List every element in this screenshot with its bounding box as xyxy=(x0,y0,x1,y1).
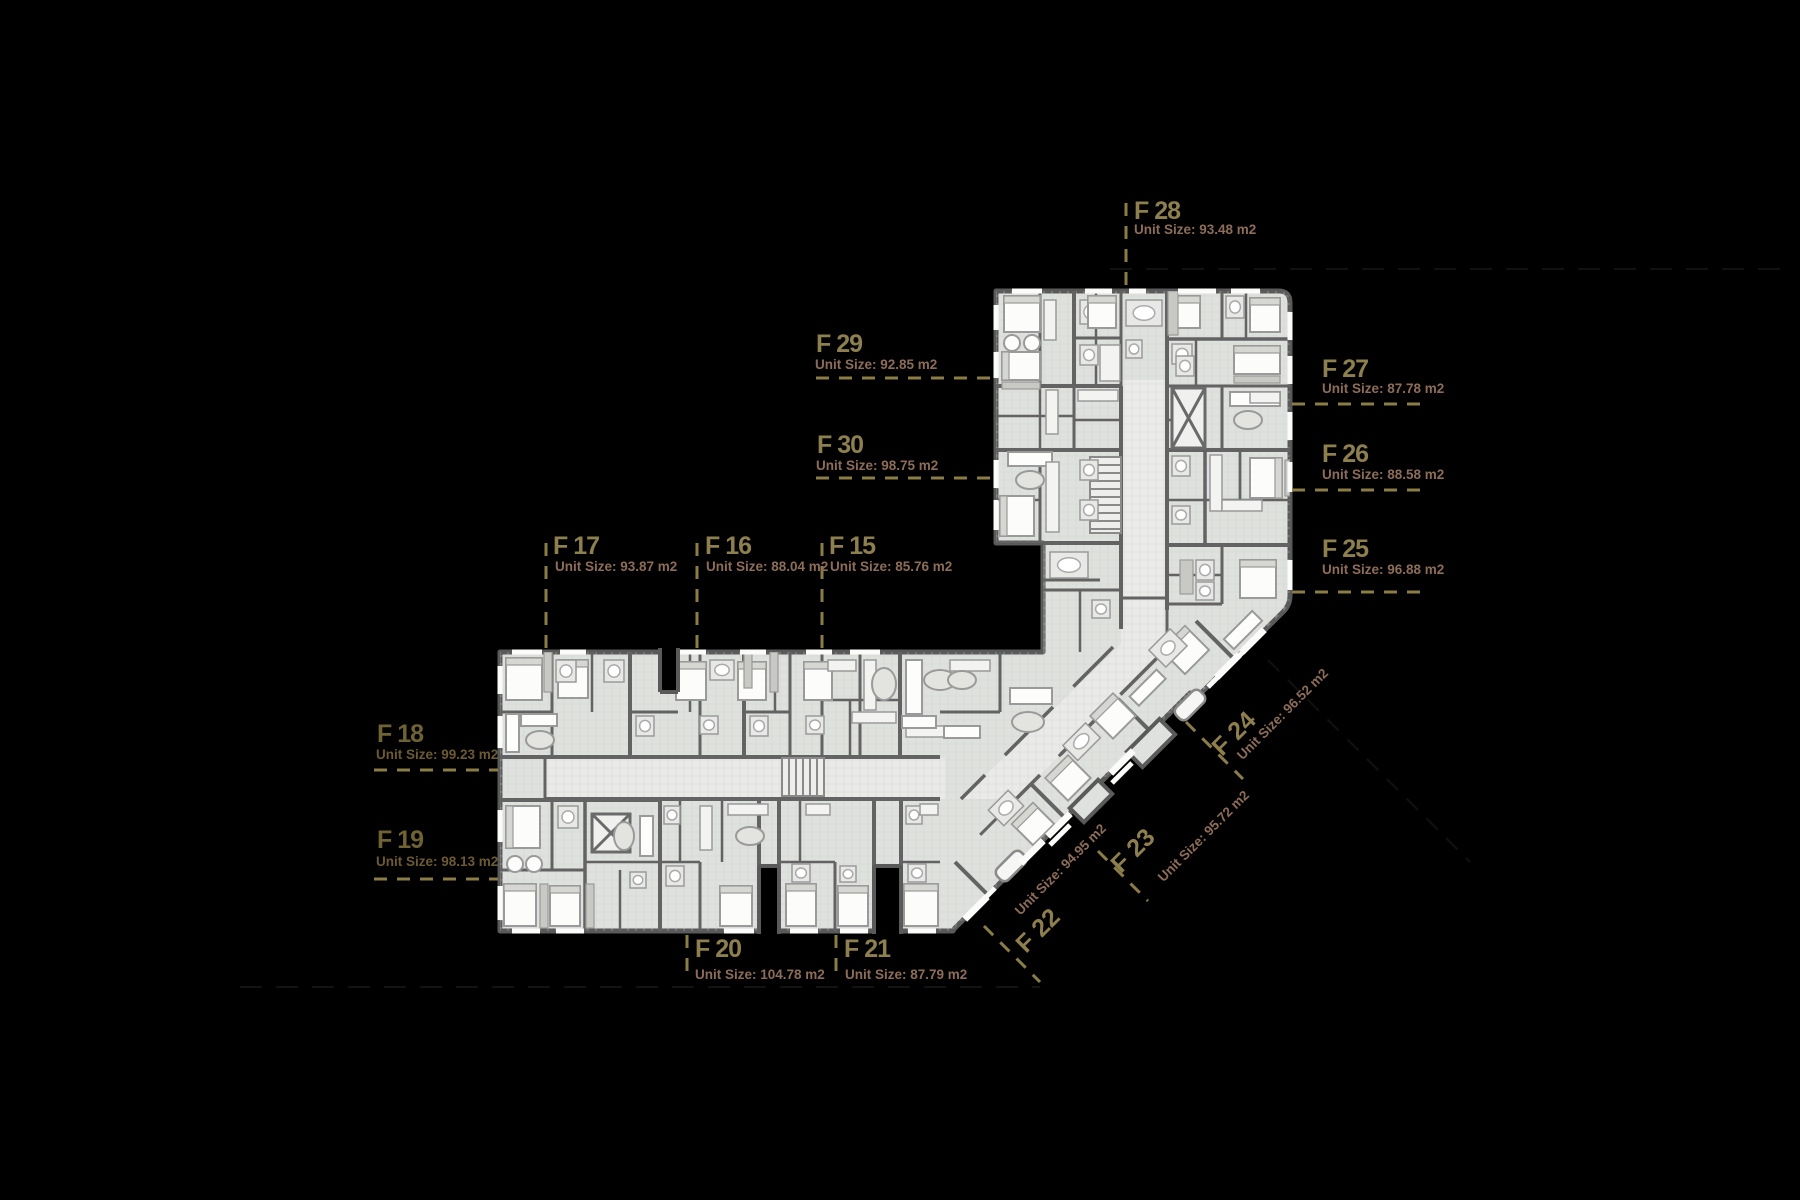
svg-text:F 16: F 16 xyxy=(705,532,751,560)
svg-text:Unit Size: 88.04 m2: Unit Size: 88.04 m2 xyxy=(706,559,828,574)
svg-text:F 30: F 30 xyxy=(817,431,863,459)
svg-text:F 20: F 20 xyxy=(695,935,741,963)
svg-text:F 25: F 25 xyxy=(1322,535,1369,563)
svg-text:Unit Size: 104.78 m2: Unit Size: 104.78 m2 xyxy=(695,967,825,982)
svg-text:Unit Size: 99.23 m2: Unit Size: 99.23 m2 xyxy=(376,747,498,762)
svg-text:Unit Size: 96.88 m2: Unit Size: 96.88 m2 xyxy=(1322,562,1444,577)
svg-text:Unit Size: 85.76 m2: Unit Size: 85.76 m2 xyxy=(830,559,952,574)
svg-text:F 17: F 17 xyxy=(553,532,599,560)
svg-text:F 26: F 26 xyxy=(1322,440,1368,468)
svg-text:F 28: F 28 xyxy=(1134,197,1181,225)
svg-text:Unit Size: 88.58 m2: Unit Size: 88.58 m2 xyxy=(1322,467,1444,482)
svg-text:F 29: F 29 xyxy=(816,330,862,358)
svg-text:Unit Size: 98.13 m2: Unit Size: 98.13 m2 xyxy=(376,854,498,869)
svg-text:Unit Size: 98.75 m2: Unit Size: 98.75 m2 xyxy=(816,458,938,473)
svg-text:Unit Size: 92.85 m2: Unit Size: 92.85 m2 xyxy=(815,357,937,372)
svg-text:Unit Size: 93.48 m2: Unit Size: 93.48 m2 xyxy=(1134,222,1256,237)
svg-text:Unit Size: 93.87 m2: Unit Size: 93.87 m2 xyxy=(555,559,677,574)
svg-text:Unit Size: 87.78 m2: Unit Size: 87.78 m2 xyxy=(1322,381,1444,396)
svg-text:F 19: F 19 xyxy=(377,826,423,854)
svg-text:F 15: F 15 xyxy=(829,532,876,560)
svg-text:Unit Size: 87.79 m2: Unit Size: 87.79 m2 xyxy=(845,967,967,982)
svg-text:F 21: F 21 xyxy=(844,935,891,963)
svg-text:F 27: F 27 xyxy=(1322,355,1368,383)
svg-text:F 18: F 18 xyxy=(377,720,424,748)
